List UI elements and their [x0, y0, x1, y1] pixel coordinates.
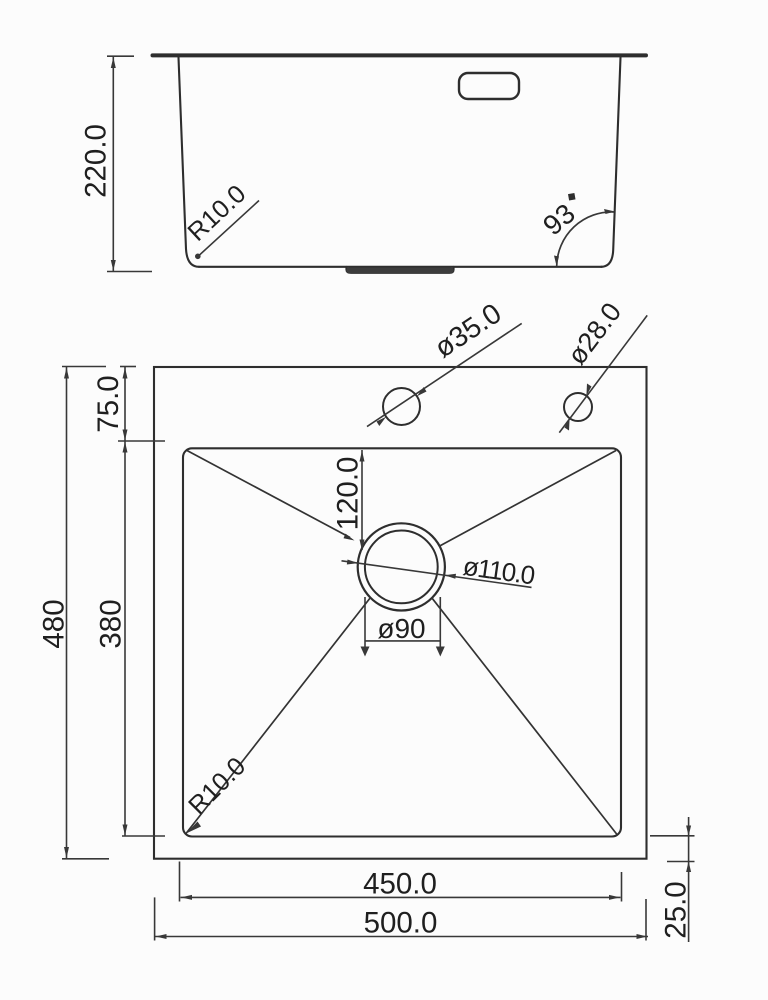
svg-text:25.0: 25.0: [659, 881, 692, 938]
svg-text:75.0: 75.0: [92, 375, 125, 432]
svg-text:ø90: ø90: [377, 613, 425, 644]
svg-text:220.0: 220.0: [79, 124, 112, 198]
svg-text:500.0: 500.0: [364, 907, 438, 940]
svg-text:480: 480: [37, 599, 70, 648]
svg-text:450.0: 450.0: [363, 868, 437, 901]
svg-text:380: 380: [94, 599, 127, 648]
svg-text:120.0: 120.0: [331, 457, 364, 531]
